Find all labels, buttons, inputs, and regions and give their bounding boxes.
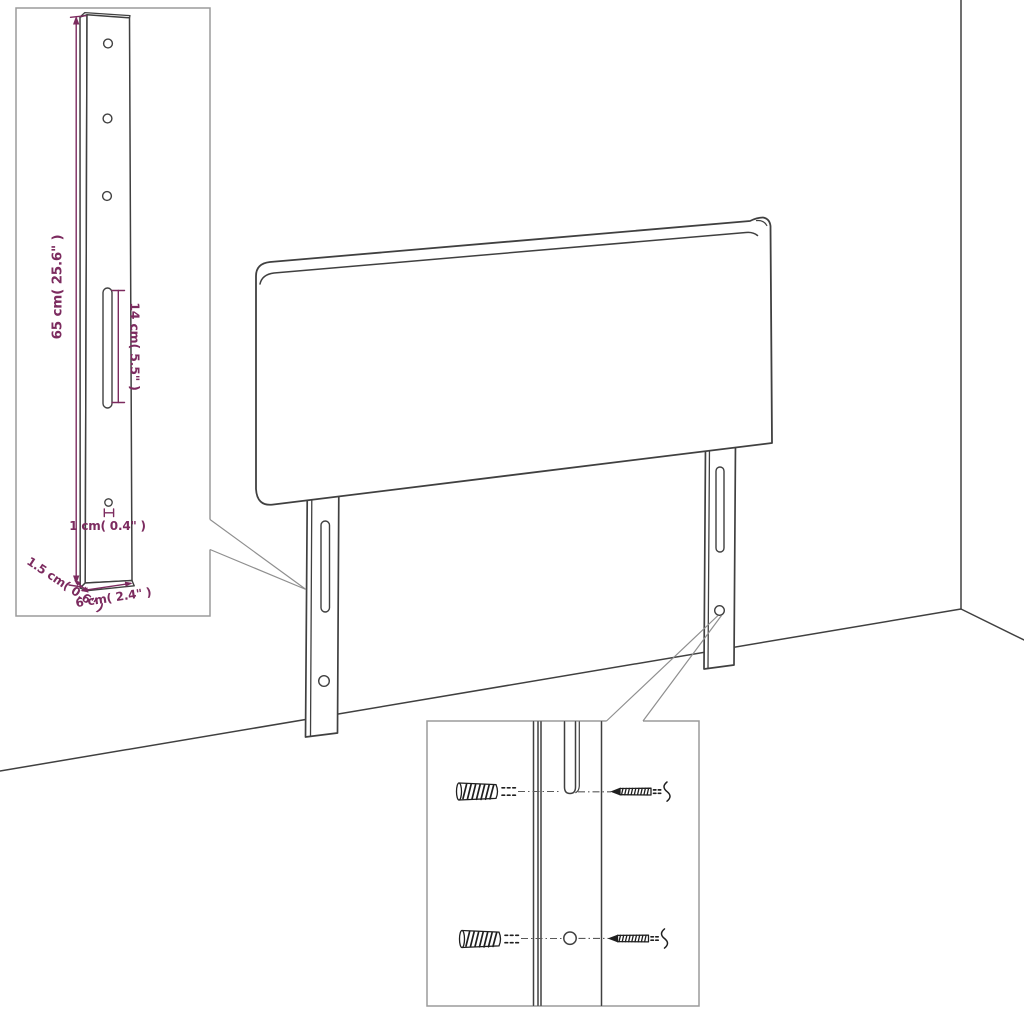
bar-hole-3	[103, 192, 112, 201]
diagram-canvas: 65 cm( 25.6" ) 14 cm( 5.5" ) 1 cm( 0.4" …	[0, 0, 1024, 1024]
left-leg-hole	[319, 676, 330, 687]
hardware-inset-background	[427, 721, 699, 1006]
callout-lines	[210, 520, 722, 722]
headboard-panel	[256, 218, 772, 505]
headboard-assembly-diagram: 65 cm( 25.6" ) 14 cm( 5.5" ) 1 cm( 0.4" …	[0, 0, 1024, 1024]
bar-slot	[103, 288, 112, 408]
right-leg-slot	[716, 467, 724, 552]
leg-inset-drawing	[80, 13, 134, 591]
dim-label-hole: 1 cm( 0.4" )	[69, 519, 146, 533]
bar-hole-2	[103, 114, 112, 123]
panel-outline	[256, 218, 772, 505]
right-leg	[704, 442, 736, 669]
hardware-detail-inset	[427, 721, 699, 1006]
bar-small-hole	[105, 499, 112, 506]
right-leg-hole	[715, 606, 725, 616]
left-leg-slot	[321, 521, 330, 612]
bar-hole-1	[104, 39, 113, 48]
callout-inset-to-left-leg	[210, 520, 306, 590]
dim-label-slot: 14 cm( 5.5" )	[128, 302, 143, 390]
strip-hole-magnified	[564, 932, 576, 944]
dim-label-height: 65 cm( 25.6" )	[50, 235, 66, 340]
floor-line-right	[961, 609, 1024, 640]
